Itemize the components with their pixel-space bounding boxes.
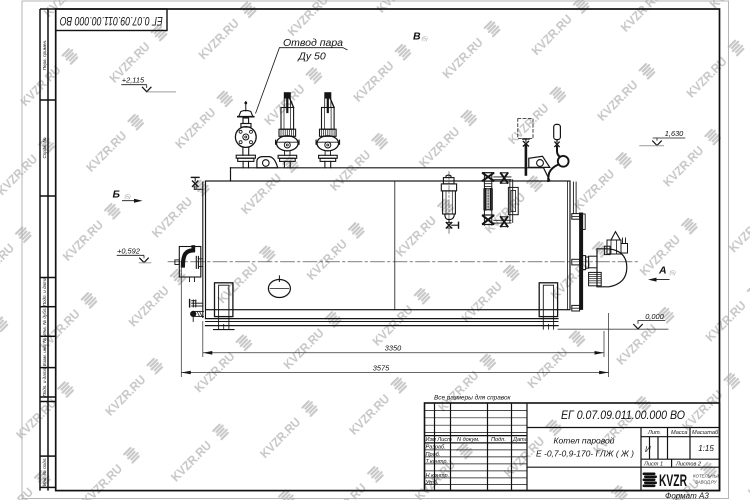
svg-text:Ду 50: Ду 50 — [297, 51, 326, 63]
svg-text:ЕГ 0.07.09.011.00.000 ВО: ЕГ 0.07.09.011.00.000 ВО — [561, 410, 685, 422]
svg-text:Инв. № подл.: Инв. № подл. — [42, 457, 47, 486]
svg-text:Лит.: Лит. — [647, 430, 661, 436]
svg-text:Перв. примен.: Перв. примен. — [42, 40, 47, 71]
svg-text:Отвод пара: Отвод пара — [283, 37, 343, 49]
svg-text:KVZR: KVZR — [659, 471, 687, 490]
svg-text:Проб.: Проб. — [426, 452, 441, 458]
svg-text:1,630: 1,630 — [665, 129, 684, 138]
svg-text:(5): (5) — [670, 271, 676, 277]
svg-text:А: А — [658, 265, 667, 277]
svg-text:Утб.: Утб. — [425, 480, 439, 486]
svg-text:Все размеры для справок: Все размеры для справок — [434, 393, 512, 401]
svg-text:Котел паровой: Котел паровой — [554, 436, 615, 446]
svg-text:Н.контр.: Н.контр. — [426, 473, 450, 479]
svg-text:Листов 2: Листов 2 — [675, 461, 702, 467]
svg-text:0,000: 0,000 — [645, 312, 664, 321]
svg-text:Взам. инв. №: Взам. инв. № — [42, 338, 47, 366]
svg-text:Е -0,7-0,9-170- ГЛЖ ( Ж ): Е -0,7-0,9-170- ГЛЖ ( Ж ) — [536, 449, 634, 459]
svg-text:1:15: 1:15 — [698, 444, 714, 453]
svg-text:+0,592: +0,592 — [117, 246, 140, 255]
svg-text:3575: 3575 — [373, 363, 390, 372]
svg-text:Дата: Дата — [512, 437, 528, 443]
svg-text:Лист 1: Лист 1 — [643, 461, 663, 467]
svg-text:Подп. и дата: Подп. и дата — [42, 277, 47, 306]
svg-text:Разраб.: Разраб. — [426, 445, 446, 451]
svg-text:Масса: Масса — [671, 430, 688, 436]
svg-text:КОТЕЛЬНЫЙ: КОТЕЛЬНЫЙ — [693, 474, 721, 479]
svg-text:Подп.: Подп. — [491, 437, 506, 443]
svg-text:Масштаб: Масштаб — [692, 430, 719, 436]
svg-text:ЗАВОД.РУ: ЗАВОД.РУ — [695, 480, 718, 485]
svg-text:Т.контр.: Т.контр. — [426, 459, 449, 465]
svg-text:Инв. № дубл.: Инв. № дубл. — [42, 307, 47, 335]
svg-text:Справ. №: Справ. № — [42, 138, 47, 159]
svg-text:И: И — [645, 445, 651, 454]
svg-text:Изм Лист: Изм Лист — [426, 437, 453, 443]
svg-text:В: В — [413, 31, 421, 43]
svg-text:+2,115: +2,115 — [122, 76, 145, 85]
svg-text:Подп. и дата: Подп. и дата — [42, 367, 47, 396]
svg-text:(5): (5) — [125, 195, 131, 201]
svg-text:Формат А3: Формат А3 — [665, 492, 709, 500]
svg-text:N докум.: N докум. — [457, 437, 480, 443]
svg-text:3350: 3350 — [385, 344, 402, 353]
svg-text:ЕГ 0.07.09.011.00.000 ВО: ЕГ 0.07.09.011.00.000 ВО — [60, 14, 163, 28]
svg-text:(5): (5) — [422, 37, 428, 43]
svg-text:Б: Б — [113, 189, 121, 201]
